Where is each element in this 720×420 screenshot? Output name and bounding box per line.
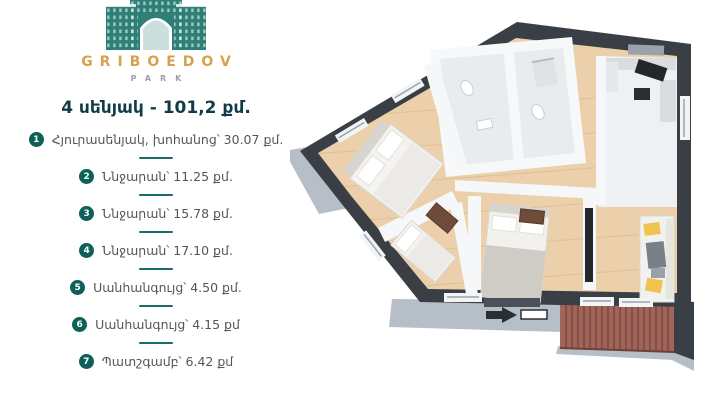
nightstand (519, 209, 544, 224)
list-divider (139, 194, 173, 196)
room-number-badge: 5 (70, 280, 85, 295)
room-label: Սանհանգույց՝ 4.15 քմ (95, 317, 240, 332)
room-label: Ննջարան՝ 17.10 քմ. (102, 243, 233, 258)
yellow-pillow (643, 222, 661, 236)
balcony (560, 300, 674, 352)
arch-building-icon (100, 0, 212, 50)
brand-name: GRIBOEDOV (74, 54, 238, 70)
sofa (640, 216, 674, 302)
kitchen (596, 56, 677, 207)
room-label: Սանհանգույց՝ 4.50 քմ. (93, 280, 242, 295)
balcony-side-wall (672, 300, 694, 360)
list-divider (139, 268, 173, 270)
stove (634, 88, 650, 100)
list-divider (139, 157, 173, 159)
floor-plan-svg (290, 0, 720, 420)
room-list-item: 2 Ննջարան՝ 11.25 քմ. (79, 169, 233, 184)
list-divider (139, 342, 173, 344)
yellow-pillow (645, 278, 663, 294)
info-panel: GRIBOEDOV PARK 4 սենյակ - 101,2 քմ. 1 Հյ… (10, 0, 302, 420)
window (680, 96, 690, 140)
room-number-badge: 2 (79, 169, 94, 184)
room-list-item: 5 Սանհանգույց՝ 4.50 քմ. (70, 280, 242, 295)
room-number-badge: 1 (29, 132, 44, 147)
top-wall-vent (628, 44, 664, 55)
list-divider (139, 231, 173, 233)
gray-cushion (651, 268, 665, 278)
kitchen-wall (596, 56, 606, 205)
window (444, 293, 482, 302)
tv-unit (585, 208, 593, 282)
room-list: 1 Հյուրասենյակ, խոհանոց՝ 30.07 քմ. 2 Ննջ… (10, 132, 302, 369)
list-divider (139, 305, 173, 307)
floor-plan (290, 0, 720, 420)
gray-cushion (646, 241, 667, 269)
room-list-item: 6 Սանհանգույց՝ 4.15 քմ (72, 317, 240, 332)
room-list-item: 7 Պատշգամբ՝ 6.42 քմ (79, 354, 233, 369)
entry-door-plate (521, 310, 547, 319)
flyer-page: GRIBOEDOV PARK 4 սենյակ - 101,2 քմ. 1 Հյ… (0, 0, 720, 420)
room-number-badge: 4 (79, 243, 94, 258)
room-list-item: 4 Ննջարան՝ 17.10 քմ. (79, 243, 233, 258)
room-label: Հյուրասենյակ, խոհանոց՝ 30.07 քմ. (52, 132, 284, 147)
brand-subtitle: PARK (122, 74, 191, 83)
room-number-badge: 7 (79, 354, 94, 369)
room-label: Պատշգամբ՝ 6.42 քմ (102, 354, 233, 369)
plan-title: 4 սենյակ - 101,2 քմ. (61, 98, 251, 118)
room-number-badge: 6 (72, 317, 87, 332)
room-list-item: 3 Ննջարան՝ 15.78 քմ. (79, 206, 233, 221)
room-label: Ննջարան՝ 15.78 քմ. (102, 206, 233, 221)
room-label: Ննջարան՝ 11.25 քմ. (102, 169, 233, 184)
room-list-item: 1 Հյուրասենյակ, խոհանոց՝ 30.07 քմ. (29, 132, 284, 147)
room-number-badge: 3 (79, 206, 94, 221)
